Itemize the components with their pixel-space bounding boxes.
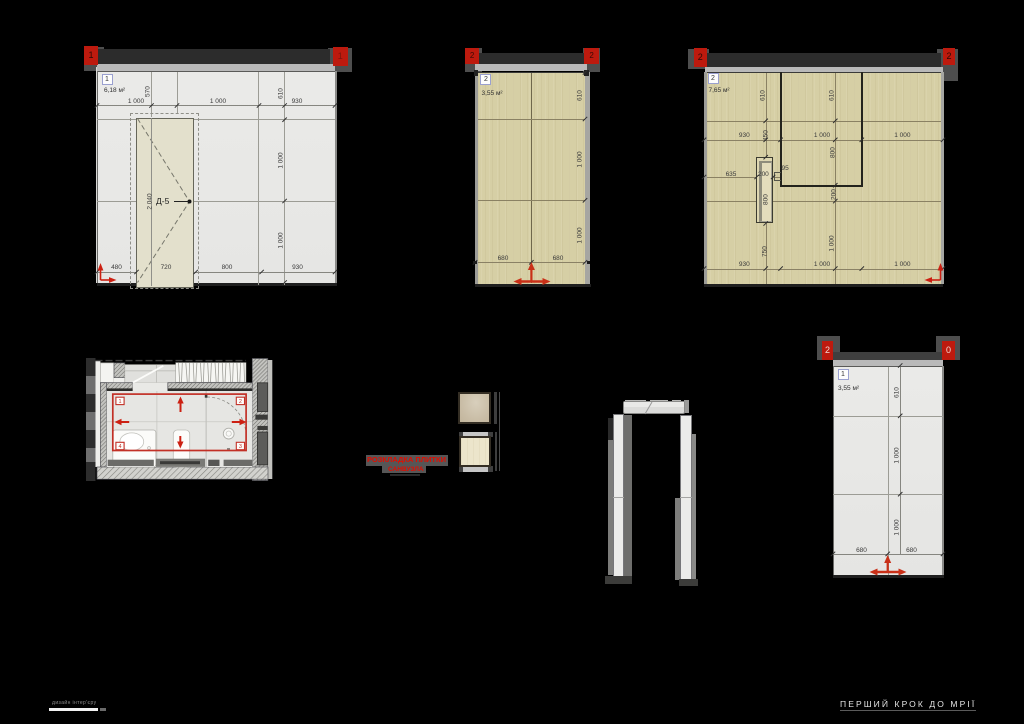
svg-text:3: 3	[239, 444, 242, 450]
svg-text:2: 2	[239, 399, 242, 405]
svg-text:4: 4	[118, 444, 121, 450]
svg-text:1: 1	[118, 399, 121, 405]
